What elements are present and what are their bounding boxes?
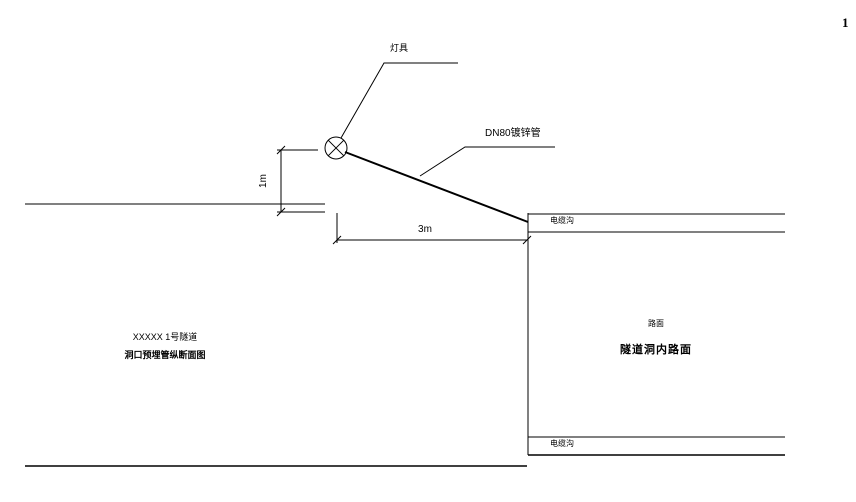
cad-drawing-canvas: 灯具 DN80镀锌管 1m 3m 电缆沟 电缆沟 路面 隧道洞内路面 XXXXX…	[0, 0, 856, 502]
pipe-line	[345, 152, 528, 222]
drawing-linework	[0, 0, 856, 502]
lamp-label: 灯具	[390, 44, 408, 53]
pipe-label: DN80镀锌管	[485, 129, 541, 139]
lamp-leader-line	[341, 63, 458, 138]
tunnel-road-title: 路面 隧道洞内路面	[586, 318, 726, 357]
road-title-label: 隧道洞内路面	[586, 341, 726, 357]
lamp-symbol	[325, 137, 347, 159]
drawing-title-block: XXXXX 1号隧道 洞口预埋管纵断面图	[103, 330, 227, 361]
dim-1m-label: 1m	[259, 166, 277, 196]
cable-trench-label-top: 电缆沟	[550, 217, 574, 225]
pipe-leader-line	[420, 147, 555, 176]
dim-1m	[277, 146, 325, 216]
cable-trench-label-bottom: 电缆沟	[550, 440, 574, 448]
drawing-title-line2: 洞口预埋管纵断面图	[103, 348, 227, 361]
page-number: 1	[842, 16, 849, 29]
dim-3m-label: 3m	[395, 225, 455, 235]
road-small-label: 路面	[586, 318, 726, 329]
drawing-title-line1: XXXXX 1号隧道	[103, 330, 227, 343]
